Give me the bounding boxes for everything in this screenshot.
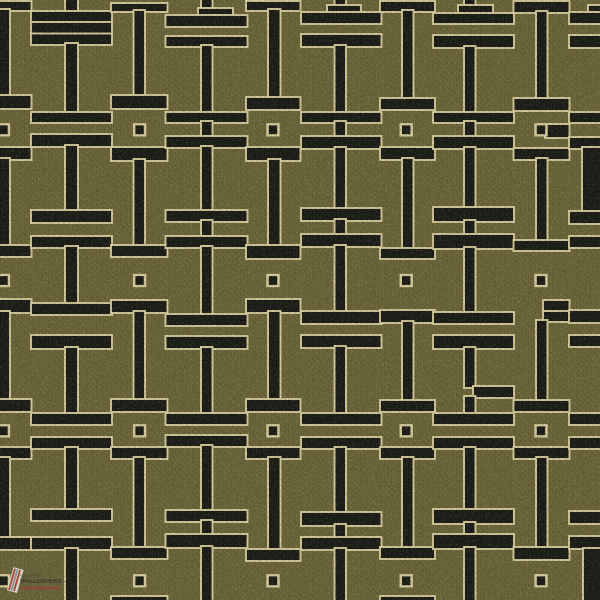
svg-text:.com: .com	[58, 580, 66, 584]
svg-text:SELECTED: SELECTED	[20, 574, 42, 579]
svg-text:WALLPAPERS: WALLPAPERS	[20, 579, 61, 585]
